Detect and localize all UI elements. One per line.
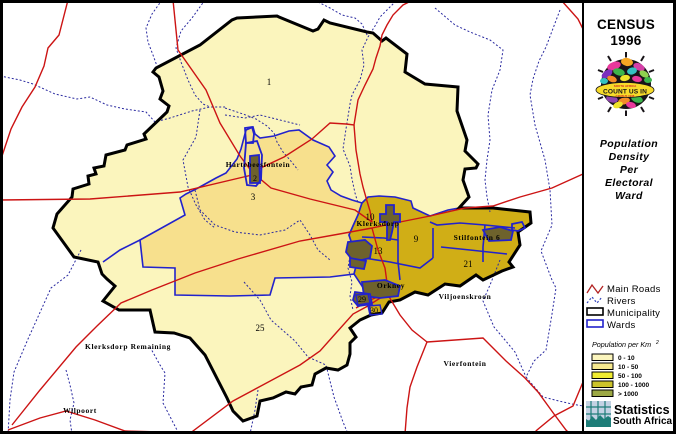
svg-text:29: 29 (358, 295, 366, 304)
svg-text:10 - 50: 10 - 50 (618, 364, 639, 371)
svg-text:Wilpoort: Wilpoort (63, 406, 97, 415)
svg-text:1996: 1996 (610, 33, 641, 48)
svg-text:Main Roads: Main Roads (607, 284, 661, 295)
svg-text:SOUTH AFRICA: SOUTH AFRICA (614, 84, 637, 88)
svg-text:> 1000: > 1000 (618, 391, 638, 398)
svg-text:Vierfontein: Vierfontein (444, 359, 487, 368)
svg-text:Per: Per (620, 164, 639, 176)
svg-text:10: 10 (366, 212, 376, 222)
svg-text:Municipality: Municipality (607, 308, 660, 319)
svg-text:Orkney: Orkney (377, 281, 405, 290)
svg-text:Stilfontein 6: Stilfontein 6 (454, 233, 501, 242)
svg-text:Viljoenskroon: Viljoenskroon (439, 292, 492, 301)
svg-text:South Africa: South Africa (613, 416, 673, 427)
svg-text:CENSUS 1996: CENSUS 1996 (616, 94, 635, 98)
svg-text:2: 2 (655, 340, 659, 346)
svg-text:Rivers: Rivers (607, 296, 636, 307)
svg-text:Statistics: Statistics (614, 403, 670, 417)
svg-text:Population per Km: Population per Km (592, 340, 651, 349)
svg-text:50 - 100: 50 - 100 (618, 373, 642, 380)
svg-text:100 - 1000: 100 - 1000 (618, 382, 649, 389)
svg-text:Hartebeesfontein: Hartebeesfontein (226, 160, 291, 169)
svg-text:0 - 10: 0 - 10 (618, 355, 635, 362)
svg-text:3: 3 (251, 192, 256, 202)
svg-text:13: 13 (374, 246, 384, 256)
svg-text:Population: Population (600, 138, 658, 150)
svg-text:Klerksdorp: Klerksdorp (356, 219, 399, 228)
svg-text:Klerksdorp Remaining: Klerksdorp Remaining (85, 342, 171, 351)
svg-text:9: 9 (414, 234, 419, 244)
svg-text:Ward: Ward (615, 190, 643, 202)
svg-text:25: 25 (256, 323, 266, 333)
svg-text:Electoral: Electoral (605, 177, 654, 189)
svg-text:Density: Density (609, 151, 650, 163)
svg-text:2: 2 (253, 174, 257, 183)
svg-text:21: 21 (464, 259, 473, 269)
svg-text:CENSUS: CENSUS (597, 17, 655, 32)
svg-text:1: 1 (267, 77, 272, 87)
svg-text:30: 30 (370, 306, 378, 315)
svg-text:Wards: Wards (607, 320, 636, 331)
